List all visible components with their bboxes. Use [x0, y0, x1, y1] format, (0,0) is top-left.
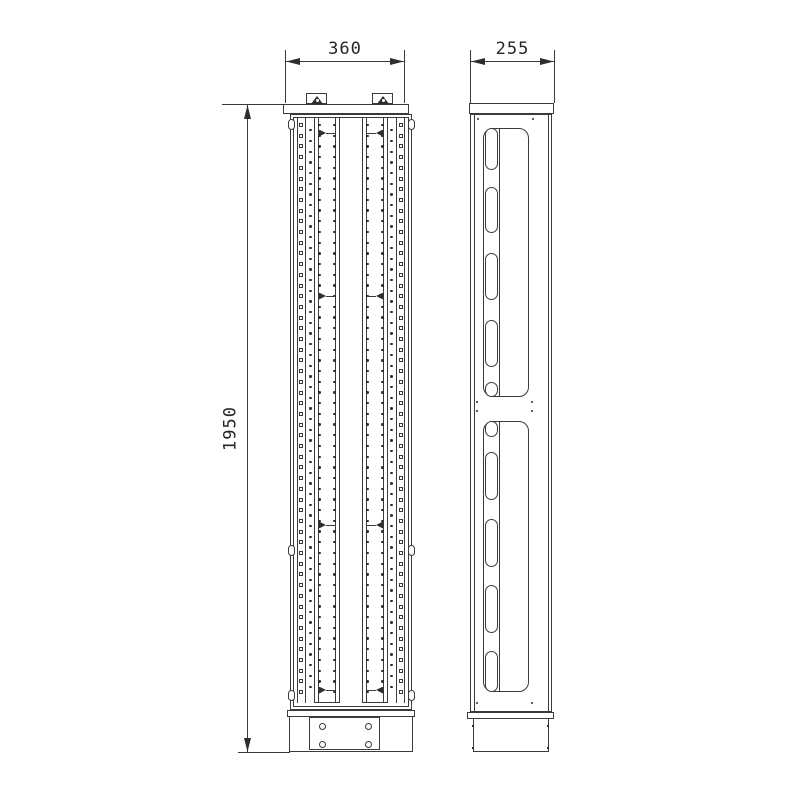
- round-hole: [390, 643, 392, 645]
- round-hole: [309, 653, 311, 655]
- side-panel-divider: [499, 129, 500, 396]
- rivet-dot: [318, 167, 320, 169]
- bolt-hole: [365, 741, 372, 748]
- dim-depth-arrow-left: [471, 58, 485, 65]
- rivet-dot: [366, 145, 368, 147]
- rivet-dot: [318, 381, 320, 383]
- round-hole: [390, 493, 392, 495]
- dim-height-line: [247, 104, 248, 753]
- square-hole: [299, 679, 303, 683]
- bolt-hole: [365, 723, 372, 730]
- rivet-dot: [333, 456, 335, 458]
- cable-slot: [485, 187, 498, 233]
- square-hole: [399, 391, 403, 395]
- square-hole: [399, 230, 403, 234]
- rivet-dot: [381, 391, 383, 393]
- round-hole: [309, 375, 311, 377]
- rivet-dot: [318, 520, 320, 522]
- rivet-dot: [333, 595, 335, 597]
- round-hole: [390, 589, 392, 591]
- square-hole: [399, 198, 403, 202]
- rivet-dot: [366, 370, 368, 372]
- rivet-dot: [318, 124, 320, 126]
- rivet-dot: [318, 584, 320, 586]
- channel-wall: [383, 118, 384, 702]
- square-hole: [399, 637, 403, 641]
- rivet-dot: [333, 498, 335, 500]
- rivet-dot: [366, 456, 368, 458]
- rivet-dot: [366, 584, 368, 586]
- square-hole: [399, 251, 403, 255]
- rivet-dot: [333, 199, 335, 201]
- round-hole: [390, 504, 392, 506]
- channel-wall: [318, 118, 319, 702]
- rivet-dot: [333, 177, 335, 179]
- rivet-dot: [366, 274, 368, 276]
- square-hole: [399, 412, 403, 416]
- rivet-dot: [366, 573, 368, 575]
- round-hole: [390, 365, 392, 367]
- rivet-dot: [333, 252, 335, 254]
- round-hole: [390, 514, 392, 516]
- rivet-dot: [318, 231, 320, 233]
- rivet-dot: [381, 627, 383, 629]
- square-hole: [399, 326, 403, 330]
- rivet-dot: [381, 520, 383, 522]
- side-panel-divider: [499, 422, 500, 691]
- square-hole: [299, 444, 303, 448]
- round-hole: [309, 472, 311, 474]
- square-hole: [299, 380, 303, 384]
- rivet-dot: [381, 349, 383, 351]
- square-hole: [399, 273, 403, 277]
- square-hole: [299, 562, 303, 566]
- round-hole: [390, 172, 392, 174]
- round-hole: [390, 279, 392, 281]
- rivet-dot: [381, 466, 383, 468]
- square-hole: [399, 605, 403, 609]
- hinge-knuckle: [288, 690, 295, 701]
- weld-tick: [547, 747, 549, 749]
- square-hole: [399, 369, 403, 373]
- dim-height-ext-bottom: [238, 752, 290, 753]
- rivet-dot: [318, 209, 320, 211]
- rivet-dot: [333, 391, 335, 393]
- weld-tick: [547, 725, 549, 727]
- lifting-lug-left: [306, 93, 327, 104]
- rivet-dot: [318, 349, 320, 351]
- square-hole: [299, 144, 303, 148]
- round-hole: [309, 397, 311, 399]
- square-hole: [299, 551, 303, 555]
- rivet-dot: [366, 637, 368, 639]
- round-hole: [390, 375, 392, 377]
- rivet-dot: [318, 242, 320, 244]
- square-hole: [299, 572, 303, 576]
- square-hole: [399, 380, 403, 384]
- rivet-dot: [318, 145, 320, 147]
- rivet-dot: [381, 456, 383, 458]
- rivet-dot: [333, 231, 335, 233]
- square-hole: [299, 155, 303, 159]
- square-hole: [299, 134, 303, 138]
- rivet-dot: [381, 370, 383, 372]
- rivet-dot: [333, 349, 335, 351]
- square-hole: [399, 187, 403, 191]
- square-hole: [399, 455, 403, 459]
- rivet-dot: [318, 413, 320, 415]
- round-hole: [309, 300, 311, 302]
- rivet-dot: [381, 659, 383, 661]
- square-hole: [299, 251, 303, 255]
- round-hole: [390, 354, 392, 356]
- square-hole: [299, 626, 303, 630]
- square-hole: [299, 391, 303, 395]
- clip-arrow-tail: [326, 296, 335, 297]
- square-hole: [299, 230, 303, 234]
- square-hole: [399, 508, 403, 512]
- rivet-dot: [381, 530, 383, 532]
- rivet-dot: [318, 370, 320, 372]
- round-hole: [309, 322, 311, 324]
- round-hole: [390, 161, 392, 163]
- round-hole: [309, 215, 311, 217]
- square-hole: [299, 284, 303, 288]
- rivet-dot: [381, 242, 383, 244]
- rivet-dot: [318, 359, 320, 361]
- rivet-dot: [366, 381, 368, 383]
- round-hole: [309, 354, 311, 356]
- rivet-dot: [333, 124, 335, 126]
- square-hole: [399, 123, 403, 127]
- round-hole: [309, 461, 311, 463]
- square-hole: [399, 155, 403, 159]
- square-hole: [299, 219, 303, 223]
- rivet-dot: [318, 252, 320, 254]
- rivet-dot: [381, 284, 383, 286]
- rivet-dot: [333, 552, 335, 554]
- clip-arrow-tail: [367, 296, 376, 297]
- rivet-dot: [381, 306, 383, 308]
- round-hole: [309, 514, 311, 516]
- round-hole: [309, 439, 311, 441]
- square-hole: [299, 337, 303, 341]
- round-hole: [390, 300, 392, 302]
- rivet-dot: [366, 445, 368, 447]
- rivet-dot: [333, 520, 335, 522]
- hinge-knuckle: [408, 545, 415, 556]
- rivet-dot: [381, 199, 383, 201]
- round-hole: [390, 140, 392, 142]
- round-hole: [390, 386, 392, 388]
- rivet-dot: [318, 284, 320, 286]
- cable-slot: [485, 128, 498, 170]
- square-hole: [399, 444, 403, 448]
- cable-slot: [485, 382, 498, 397]
- square-hole: [299, 177, 303, 181]
- round-hole: [390, 653, 392, 655]
- rivet-dot: [381, 605, 383, 607]
- front-top-cap: [283, 104, 409, 114]
- square-hole: [299, 690, 303, 694]
- rivet-dot: [318, 156, 320, 158]
- square-hole: [399, 530, 403, 534]
- rivet-dot: [333, 670, 335, 672]
- square-hole: [399, 337, 403, 341]
- square-hole: [299, 465, 303, 469]
- square-hole: [299, 166, 303, 170]
- square-hole: [299, 348, 303, 352]
- square-hole: [299, 358, 303, 362]
- rivet-dot: [333, 445, 335, 447]
- round-hole: [390, 151, 392, 153]
- square-hole: [399, 316, 403, 320]
- rivet-dot: [381, 124, 383, 126]
- square-hole: [399, 476, 403, 480]
- square-hole: [299, 326, 303, 330]
- rivet-dot: [381, 552, 383, 554]
- weld-tick: [472, 747, 474, 749]
- square-hole: [299, 637, 303, 641]
- rivet-dot: [318, 680, 320, 682]
- square-hole: [399, 615, 403, 619]
- rivet-dot: [333, 659, 335, 661]
- weld-tick: [472, 725, 474, 727]
- rivet-dot: [318, 456, 320, 458]
- rivet-dot: [366, 156, 368, 158]
- round-hole: [309, 140, 311, 142]
- rivet-dot: [381, 156, 383, 158]
- round-hole: [309, 568, 311, 570]
- round-hole: [309, 193, 311, 195]
- rivet-dot: [381, 167, 383, 169]
- rivet-dot: [366, 423, 368, 425]
- square-hole: [299, 423, 303, 427]
- clip-arrow-tail: [326, 133, 335, 134]
- rivet-dot: [381, 573, 383, 575]
- cable-slot: [485, 253, 498, 300]
- rivet-dot: [318, 199, 320, 201]
- clip-arrow-tail: [367, 133, 376, 134]
- round-hole: [309, 429, 311, 431]
- side-plinth: [473, 718, 549, 752]
- square-hole: [299, 401, 303, 405]
- square-hole: [399, 551, 403, 555]
- rivet-dot: [366, 252, 368, 254]
- dim-height-arrow-bottom: [244, 738, 251, 752]
- rivet-dot: [381, 316, 383, 318]
- rivet-dot: [366, 177, 368, 179]
- round-hole: [390, 675, 392, 677]
- rivet-dot: [333, 627, 335, 629]
- round-hole: [390, 482, 392, 484]
- rivet-dot: [333, 680, 335, 682]
- square-hole: [299, 316, 303, 320]
- rivet-dot: [318, 573, 320, 575]
- rivet-dot: [381, 488, 383, 490]
- round-hole: [390, 193, 392, 195]
- hinge-knuckle: [288, 119, 295, 130]
- round-hole: [309, 172, 311, 174]
- rivet-dot: [333, 605, 335, 607]
- square-hole: [399, 284, 403, 288]
- bolt-hole: [319, 723, 326, 730]
- square-hole: [299, 433, 303, 437]
- rivet-dot: [366, 199, 368, 201]
- round-hole: [309, 161, 311, 163]
- round-hole: [309, 546, 311, 548]
- rivet-dot: [333, 156, 335, 158]
- round-hole: [390, 247, 392, 249]
- rivet-dot: [381, 477, 383, 479]
- square-hole: [299, 669, 303, 673]
- round-hole: [309, 643, 311, 645]
- square-hole: [299, 498, 303, 502]
- rivet-dot: [381, 274, 383, 276]
- square-hole: [299, 294, 303, 298]
- square-hole: [399, 594, 403, 598]
- square-hole: [299, 530, 303, 534]
- rivet-dot: [381, 498, 383, 500]
- square-hole: [399, 134, 403, 138]
- channel-wall: [366, 118, 367, 702]
- square-hole: [299, 605, 303, 609]
- cable-slot: [485, 452, 498, 500]
- round-hole: [390, 429, 392, 431]
- square-hole: [299, 209, 303, 213]
- rivet-dot: [318, 530, 320, 532]
- rivet-dot: [318, 670, 320, 672]
- rivet-dot: [366, 167, 368, 169]
- rivet-dot: [333, 263, 335, 265]
- square-hole: [399, 583, 403, 587]
- rivet-dot: [318, 263, 320, 265]
- square-hole: [399, 433, 403, 437]
- cable-slot: [485, 320, 498, 367]
- square-hole: [399, 562, 403, 566]
- round-hole: [309, 686, 311, 688]
- rivet-dot: [366, 670, 368, 672]
- rivet-dot: [381, 680, 383, 682]
- round-hole: [390, 183, 392, 185]
- rivet-dot: [318, 423, 320, 425]
- square-hole: [299, 273, 303, 277]
- cable-slot: [485, 651, 498, 692]
- rivet-dot: [318, 595, 320, 597]
- square-hole: [399, 294, 403, 298]
- round-hole: [309, 258, 311, 260]
- round-hole: [309, 482, 311, 484]
- square-hole: [299, 369, 303, 373]
- drawing-canvas: 360 255 1950: [0, 0, 800, 800]
- round-hole: [309, 332, 311, 334]
- rivet-dot: [333, 584, 335, 586]
- square-hole: [299, 262, 303, 266]
- round-hole: [390, 536, 392, 538]
- square-hole: [399, 690, 403, 694]
- rivet-dot: [366, 306, 368, 308]
- rivet-dot: [333, 637, 335, 639]
- rivet-dot: [366, 316, 368, 318]
- hinge-knuckle: [408, 690, 415, 701]
- round-hole: [309, 675, 311, 677]
- clip-arrow-tail: [367, 525, 376, 526]
- rivet-dot: [381, 595, 383, 597]
- lug-hole: [382, 99, 385, 102]
- round-hole: [309, 268, 311, 270]
- dim-width-ext-left: [285, 50, 286, 103]
- rivet-dot: [318, 391, 320, 393]
- rivet-dot: [318, 477, 320, 479]
- rivet-dot: [318, 316, 320, 318]
- round-hole: [309, 247, 311, 249]
- rivet-dot: [366, 359, 368, 361]
- rivet-dot: [318, 605, 320, 607]
- rivet-dot: [381, 263, 383, 265]
- round-hole: [309, 621, 311, 623]
- rivet-dot: [366, 231, 368, 233]
- round-hole: [309, 225, 311, 227]
- rivet-dot: [366, 552, 368, 554]
- square-hole: [299, 455, 303, 459]
- dim-depth-ext-left: [470, 50, 471, 103]
- square-hole: [299, 594, 303, 598]
- dim-depth-ext-right: [554, 50, 555, 103]
- dim-depth-label: 255: [470, 40, 555, 57]
- rivet-dot: [318, 177, 320, 179]
- dim-width-line: [285, 61, 405, 62]
- dim-width-label: 360: [285, 40, 405, 57]
- square-hole: [399, 423, 403, 427]
- rivet-dot: [333, 284, 335, 286]
- square-hole: [299, 123, 303, 127]
- rivet-dot: [366, 124, 368, 126]
- square-hole: [299, 198, 303, 202]
- square-hole: [299, 508, 303, 512]
- channel-wall: [335, 118, 336, 702]
- rivet-dot: [366, 477, 368, 479]
- rivet-dot: [333, 477, 335, 479]
- rivet-dot: [318, 627, 320, 629]
- clip-arrow-tail: [326, 525, 335, 526]
- hinge-knuckle: [408, 119, 415, 130]
- clip-arrow-tail: [367, 690, 376, 691]
- round-hole: [309, 183, 311, 185]
- round-hole: [309, 589, 311, 591]
- rivet-dot: [333, 338, 335, 340]
- rivet-dot: [366, 413, 368, 415]
- round-hole: [309, 493, 311, 495]
- square-hole: [299, 187, 303, 191]
- round-hole: [390, 686, 392, 688]
- lifting-lug-right: [372, 93, 393, 104]
- square-hole: [399, 166, 403, 170]
- square-hole: [399, 540, 403, 544]
- square-hole: [399, 144, 403, 148]
- rivet-dot: [333, 306, 335, 308]
- cable-slot: [485, 519, 498, 567]
- side-top-cap: [469, 103, 554, 114]
- square-hole: [399, 348, 403, 352]
- rivet-dot: [318, 488, 320, 490]
- rivet-dot: [333, 691, 335, 693]
- rivet-dot: [333, 573, 335, 575]
- rivet-dot: [381, 359, 383, 361]
- hinge-knuckle: [288, 545, 295, 556]
- square-hole: [299, 540, 303, 544]
- square-hole: [399, 241, 403, 245]
- round-hole: [390, 621, 392, 623]
